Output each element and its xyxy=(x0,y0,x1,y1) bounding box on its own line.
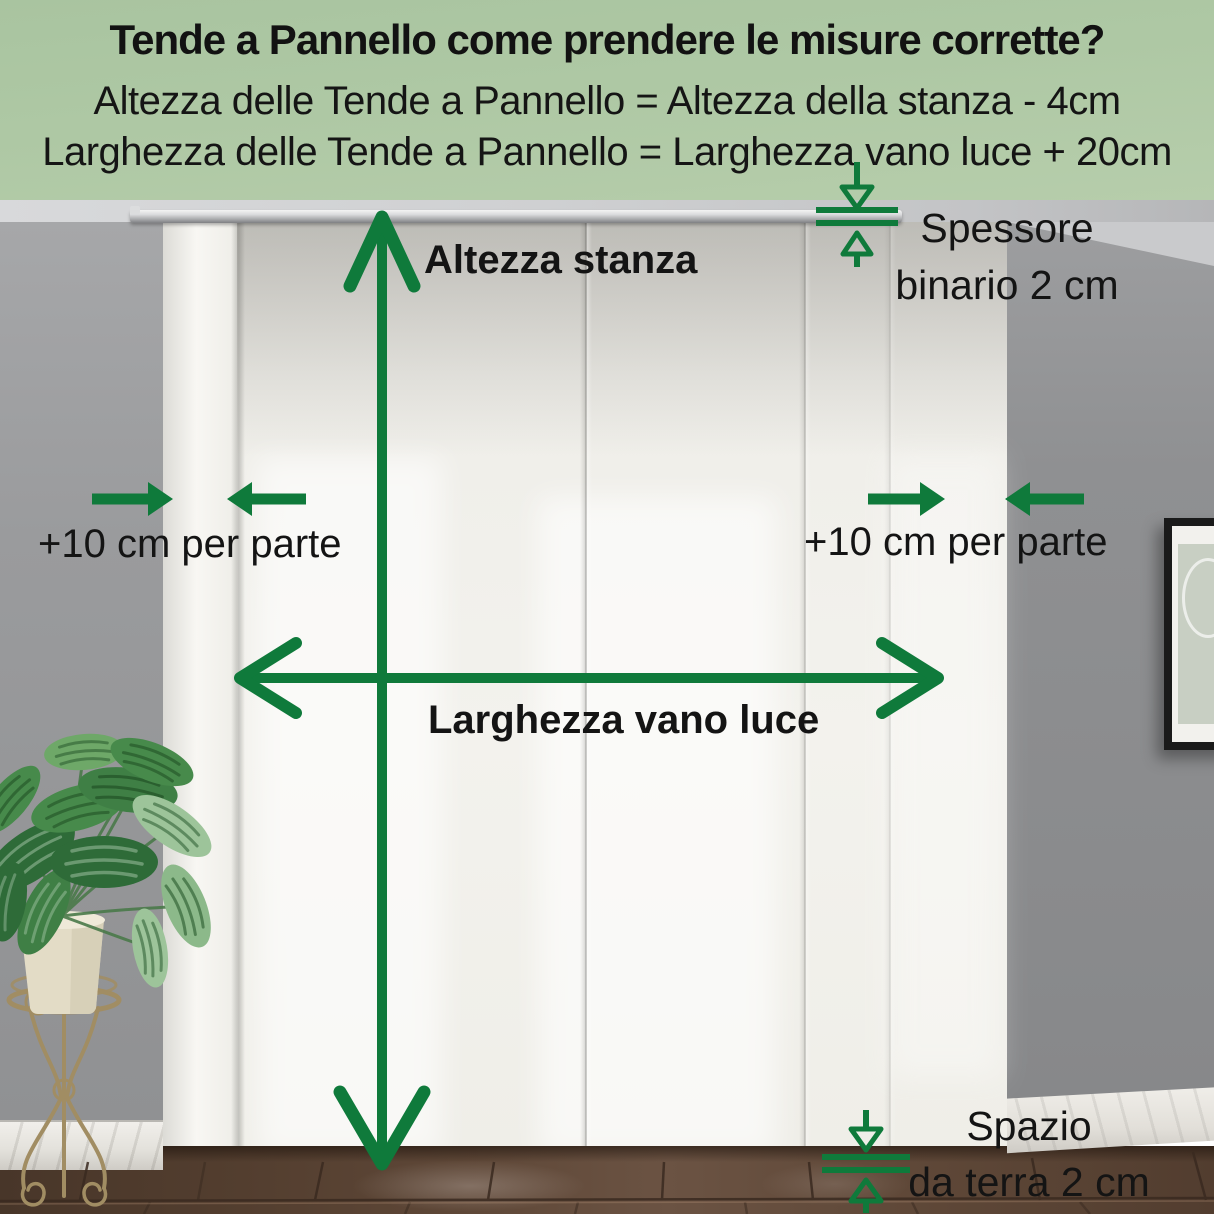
label-left-add: +10 cm per parte xyxy=(38,522,342,567)
label-floor-gap-line1: Spazio xyxy=(900,1098,1158,1154)
label-track-thickness-line2: binario 2 cm xyxy=(880,257,1134,314)
curtain-panel-seam xyxy=(884,222,896,1158)
formula-width: Larghezza delle Tende a Pannello = Largh… xyxy=(0,127,1214,178)
label-floor-gap-line2: da terra 2 cm xyxy=(900,1154,1158,1210)
curtain-panel-seam xyxy=(799,222,811,1158)
baseboard-left xyxy=(0,1120,163,1170)
header: Tende a Pannello come prendere le misure… xyxy=(0,0,1214,200)
floor-reflection xyxy=(352,1160,587,1212)
curtain-panel xyxy=(163,222,237,1150)
floor-reflection xyxy=(760,1162,910,1206)
panel-curtains xyxy=(163,222,1007,1158)
label-track-thickness: Spessore binario 2 cm xyxy=(880,200,1134,314)
label-floor-gap: Spazio da terra 2 cm xyxy=(900,1098,1158,1210)
label-right-add: +10 cm per parte xyxy=(804,520,1108,565)
window-light xyxy=(538,497,776,1157)
label-room-height: Altezza stanza xyxy=(424,238,697,283)
measurement-infographic: Tende a Pannello come prendere le misure… xyxy=(0,0,1214,1214)
picture-frame xyxy=(1164,518,1214,750)
curtain-track-end xyxy=(130,206,140,214)
label-track-thickness-line1: Spessore xyxy=(880,200,1134,257)
label-opening-width: Larghezza vano luce xyxy=(428,698,819,743)
curtain-panel-edge xyxy=(231,222,245,1158)
page-title: Tende a Pannello come prendere le misure… xyxy=(10,16,1204,64)
formula-height: Altezza delle Tende a Pannello = Altezza… xyxy=(0,76,1214,127)
curtain-panel-seam xyxy=(580,222,592,1158)
left-wall xyxy=(0,222,163,1120)
curtain-track xyxy=(130,210,902,223)
